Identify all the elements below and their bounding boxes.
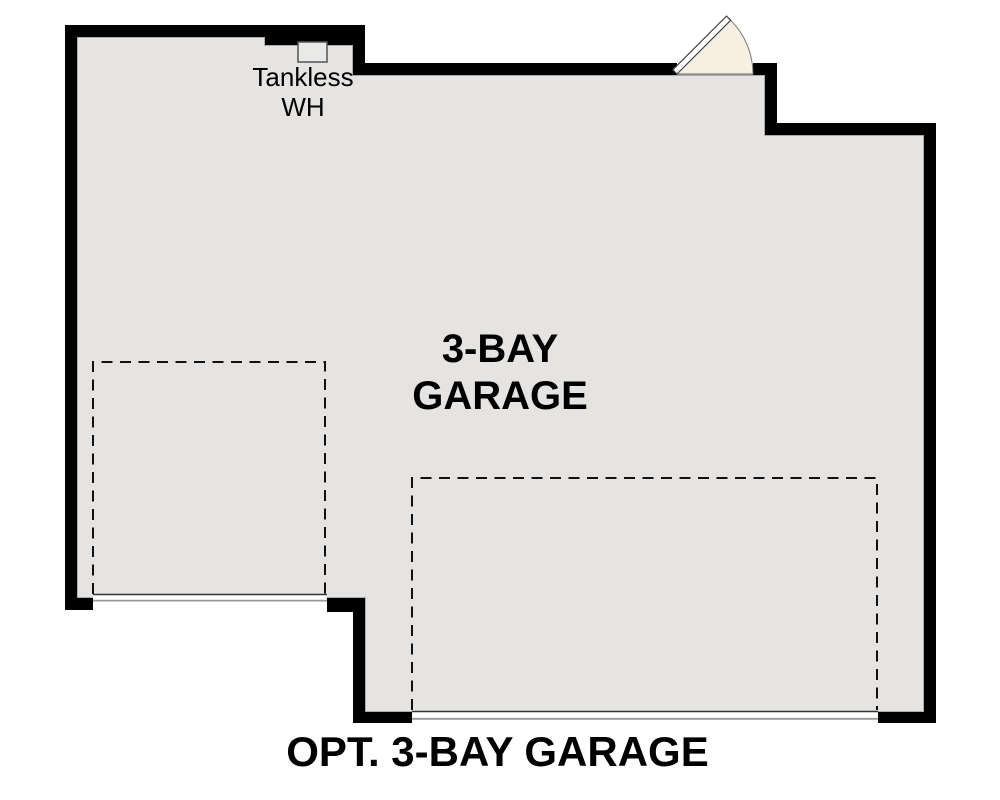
tankless-water-heater-box xyxy=(298,42,327,62)
garage-door-main xyxy=(412,712,878,719)
wall-right xyxy=(924,123,936,723)
wall-bottom-right-stub xyxy=(878,712,936,723)
wall-top-left xyxy=(65,25,365,37)
wall-right-step-vertical xyxy=(765,63,777,135)
garage-door-left-panel xyxy=(93,595,327,600)
wall-lower-step-vertical xyxy=(353,598,365,723)
wall-left xyxy=(65,25,77,610)
garage-door-main-panel xyxy=(412,712,878,718)
plan-title: OPT. 3-BAY GARAGE xyxy=(0,729,995,775)
tankless-wh-label: Tankless WH xyxy=(203,62,403,122)
wall-left-door-block xyxy=(327,598,365,612)
floor-plan-page: Tankless WH 3-BAY GARAGE OPT. 3-BAY GARA… xyxy=(0,0,1000,800)
tankless-wh-label-line1: Tankless xyxy=(203,62,403,92)
room-label-3-bay-garage: 3-BAY GARAGE xyxy=(350,326,650,420)
room-label-line1: 3-BAY xyxy=(350,326,650,373)
tankless-wh-label-line2: WH xyxy=(203,92,403,122)
wall-top-right xyxy=(777,123,936,135)
entry-door xyxy=(673,16,753,74)
garage-door-left xyxy=(93,595,327,601)
room-label-line2: GARAGE xyxy=(350,373,650,420)
wall-bottom-left-stub xyxy=(65,598,93,610)
